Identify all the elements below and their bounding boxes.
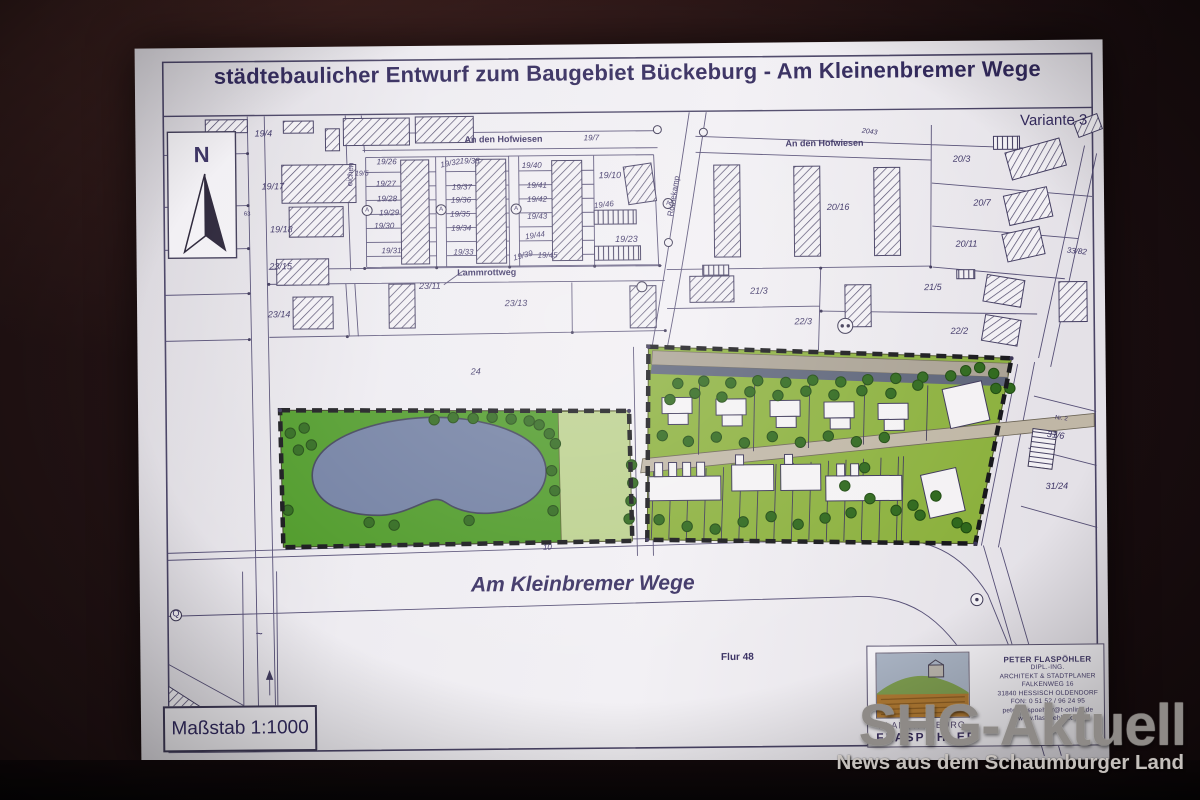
tree-symbol [823, 431, 833, 441]
map-label: 21/5 [923, 282, 943, 292]
planned-rowhouse [735, 455, 743, 465]
tree-symbol [654, 514, 664, 524]
map-label: 21/3 [749, 286, 768, 296]
map-label: 19/45 [538, 251, 559, 260]
tree-symbol [534, 420, 544, 430]
map-label: 19/17 [262, 181, 286, 191]
map-label: eichen [345, 162, 355, 186]
hatched-building [389, 284, 415, 328]
hatched-building [957, 270, 975, 279]
map-label: Röthekamp [666, 175, 682, 217]
tree-symbol [766, 511, 776, 521]
map-label: 19/32 [440, 157, 462, 170]
tree-symbol [851, 437, 861, 447]
hatched-building [1059, 282, 1087, 322]
map-label: 22/3 [793, 316, 812, 326]
tree-symbol [988, 368, 998, 378]
map-label: 19/38 [460, 156, 481, 165]
tree-symbol [683, 436, 693, 446]
map-label: 19/42 [527, 195, 548, 204]
watermark-logo-text: SHG-Aktuell [859, 692, 1186, 759]
map-label: A [666, 201, 670, 207]
hatched-building [552, 160, 583, 260]
variant-label: Variante 3 [1020, 112, 1087, 130]
tree-symbol [745, 387, 755, 397]
hatched-building [623, 163, 656, 205]
map-label: 19/36 [451, 195, 472, 204]
tree-symbol [836, 377, 846, 387]
tree-symbol [448, 412, 458, 422]
hatched-building [703, 265, 729, 275]
map-label: Lammrottweg [457, 267, 516, 278]
hatched-building [343, 118, 409, 146]
tree-symbol [546, 465, 556, 475]
map-label: 19/10 [598, 170, 621, 180]
tree-symbol [710, 524, 720, 534]
hatched-building [325, 129, 339, 151]
map-label: An den Hofwiesen [464, 134, 542, 145]
planned-house [668, 413, 688, 424]
hatched-building [476, 159, 507, 263]
map-label: 19/29 [379, 208, 400, 217]
planned-rowhouse [851, 464, 859, 476]
tree-symbol [846, 508, 856, 518]
hatched-building [293, 297, 333, 329]
map-label: 19/44 [524, 229, 546, 241]
planned-house [770, 400, 800, 416]
map-label: 19/28 [377, 194, 398, 203]
tree-symbol [961, 522, 971, 532]
meadow-strip [558, 411, 632, 542]
map-label: 19/27 [376, 179, 397, 188]
scale-box: Maßstab 1:1000 [163, 705, 317, 752]
map-label: 63 [244, 212, 251, 218]
tree-symbol [945, 371, 955, 381]
map-label: N [194, 142, 210, 167]
tree-symbol [657, 430, 667, 440]
tree-symbol [717, 392, 727, 402]
tree-symbol [773, 390, 783, 400]
tree-symbol [299, 423, 309, 433]
planned-rowhouse [826, 475, 902, 501]
tree-symbol [793, 519, 803, 529]
hatched-building [594, 246, 640, 260]
tree-symbol [468, 413, 478, 423]
tree-symbol [711, 432, 721, 442]
planned-building [942, 381, 990, 429]
tree-symbol [293, 445, 303, 455]
hatched-building [993, 136, 1019, 149]
photo-of-projected-plan: { "watermark": { "title": "SHG-Aktuell",… [0, 0, 1200, 800]
hatched-building [714, 165, 741, 257]
map-label: A [514, 206, 518, 212]
map-label: 10 [543, 543, 553, 552]
map-label: Am Kleinbremer Wege [470, 571, 695, 596]
tree-symbol [913, 380, 923, 390]
tree-symbol [891, 373, 901, 383]
map-label: A [439, 207, 443, 213]
tree-symbol [738, 517, 748, 527]
map-label: An den Hofwiesen [785, 138, 863, 149]
map-label: 19/41 [527, 181, 547, 190]
map-label: 19/30 [374, 221, 395, 230]
tree-symbol [879, 432, 889, 442]
planned-rowhouse [655, 463, 663, 477]
tree-symbol [915, 510, 925, 520]
planned-rowhouse [683, 462, 691, 476]
tree-symbol [840, 481, 850, 491]
map-label: 19/37 [452, 182, 473, 191]
watermark-tagline: News aus dem Schaumburger Land [837, 751, 1184, 775]
hatched-building [794, 166, 821, 256]
map-label: 19/35 [450, 209, 471, 218]
tree-symbol [673, 378, 683, 388]
tree-symbol [726, 378, 736, 388]
map-label: 2043 [860, 128, 877, 137]
planned-rowhouse [649, 476, 721, 501]
tree-symbol [550, 438, 560, 448]
map-label: A [365, 207, 369, 213]
map-label: 31/24 [1045, 481, 1068, 491]
tree-symbol [865, 493, 875, 503]
tree-symbol [682, 521, 692, 531]
tree-symbol [544, 428, 554, 438]
map-label: 19/40 [522, 161, 543, 170]
planned-rowhouse [669, 462, 677, 476]
planned-rowhouse [732, 465, 774, 491]
planned-rowhouse [784, 454, 792, 464]
map-label: 23/15 [268, 261, 293, 271]
hatched-building [1002, 226, 1045, 262]
map-label: 19/39 [512, 249, 534, 263]
map-label: 33/82 [1066, 246, 1087, 257]
hatched-building [983, 274, 1025, 307]
map-label: 23/14 [267, 309, 291, 319]
hatched-building [283, 121, 313, 133]
tree-symbol [857, 385, 867, 395]
tree-symbol [908, 500, 918, 510]
map-label: 19/34 [451, 223, 472, 232]
tree-symbol [524, 416, 534, 426]
map-label: 20/7 [972, 197, 992, 207]
map-label: 19/26 [377, 157, 398, 166]
tree-symbol [464, 515, 474, 525]
tree-symbol [991, 383, 1001, 393]
hatched-building [289, 207, 343, 238]
tree-symbol [960, 365, 970, 375]
tree-symbol [429, 415, 439, 425]
map-label: 19/5 [355, 170, 369, 177]
planned-rowhouse [781, 464, 821, 490]
map-label: Flur 48 [721, 652, 754, 663]
tree-symbol [739, 438, 749, 448]
map-label: Q [172, 608, 179, 618]
planned-rowhouse [697, 462, 705, 476]
tree-symbol [389, 520, 399, 530]
tree-symbol [364, 517, 374, 527]
tree-symbol [767, 431, 777, 441]
map-label: 19/43 [527, 212, 548, 221]
map-label: 20/3 [952, 154, 971, 164]
map-label: 19/4 [255, 128, 273, 138]
tree-symbol [886, 388, 896, 398]
hatched-building [594, 210, 636, 224]
tree-symbol [506, 414, 516, 424]
tree-symbol [931, 491, 941, 501]
tree-symbol [829, 390, 839, 400]
tree-symbol [820, 513, 830, 523]
tree-symbol [859, 462, 869, 472]
map-label: 19/46 [593, 199, 614, 210]
map-label: ~ [256, 626, 263, 640]
projected-plan-sheet: An den Hofwiesen19/7An den Hofwiesen2043… [135, 39, 1110, 768]
tree-symbol [801, 386, 811, 396]
map-label: 19/31 [381, 246, 401, 255]
tree-symbol [548, 505, 558, 515]
map-label: 23/13 [504, 298, 528, 308]
planned-rowhouse [837, 464, 845, 476]
tree-symbol [781, 377, 791, 387]
planned-house [878, 403, 908, 419]
tree-symbol [808, 375, 818, 385]
tree-symbol [974, 362, 984, 372]
tree-symbol [863, 374, 873, 384]
map-label: 23/11 [418, 281, 441, 291]
hatched-building [874, 167, 901, 255]
hatched-building [205, 120, 247, 133]
tree-symbol [690, 388, 700, 398]
planned-house [884, 419, 904, 430]
map-label: 19/33 [453, 247, 474, 256]
map-label: 22/2 [949, 326, 968, 336]
tree-symbol [795, 437, 805, 447]
hatched-building [690, 276, 734, 302]
tree-symbol [753, 375, 763, 385]
tree-symbol [550, 485, 560, 495]
tree-symbol [285, 428, 295, 438]
hatched-building [981, 315, 1021, 347]
planned-house [824, 402, 854, 418]
map-label: 19/7 [584, 133, 600, 142]
map-label: 19/23 [615, 234, 638, 244]
hatched-building [1003, 187, 1052, 226]
hatched-building [401, 160, 430, 264]
map-label: 20/11 [954, 239, 977, 249]
tree-symbol [665, 394, 675, 404]
planned-house [830, 418, 850, 429]
map-label: 20/16 [826, 202, 850, 212]
planned-house [722, 415, 742, 426]
tree-symbol [699, 376, 709, 386]
planned-house [776, 416, 796, 427]
map-label: 24 [470, 366, 481, 376]
tree-symbol [891, 505, 901, 515]
map-label: 19/18 [270, 224, 293, 234]
tree-symbol [487, 412, 497, 422]
tree-symbol [306, 440, 316, 450]
development-area [279, 342, 1095, 550]
